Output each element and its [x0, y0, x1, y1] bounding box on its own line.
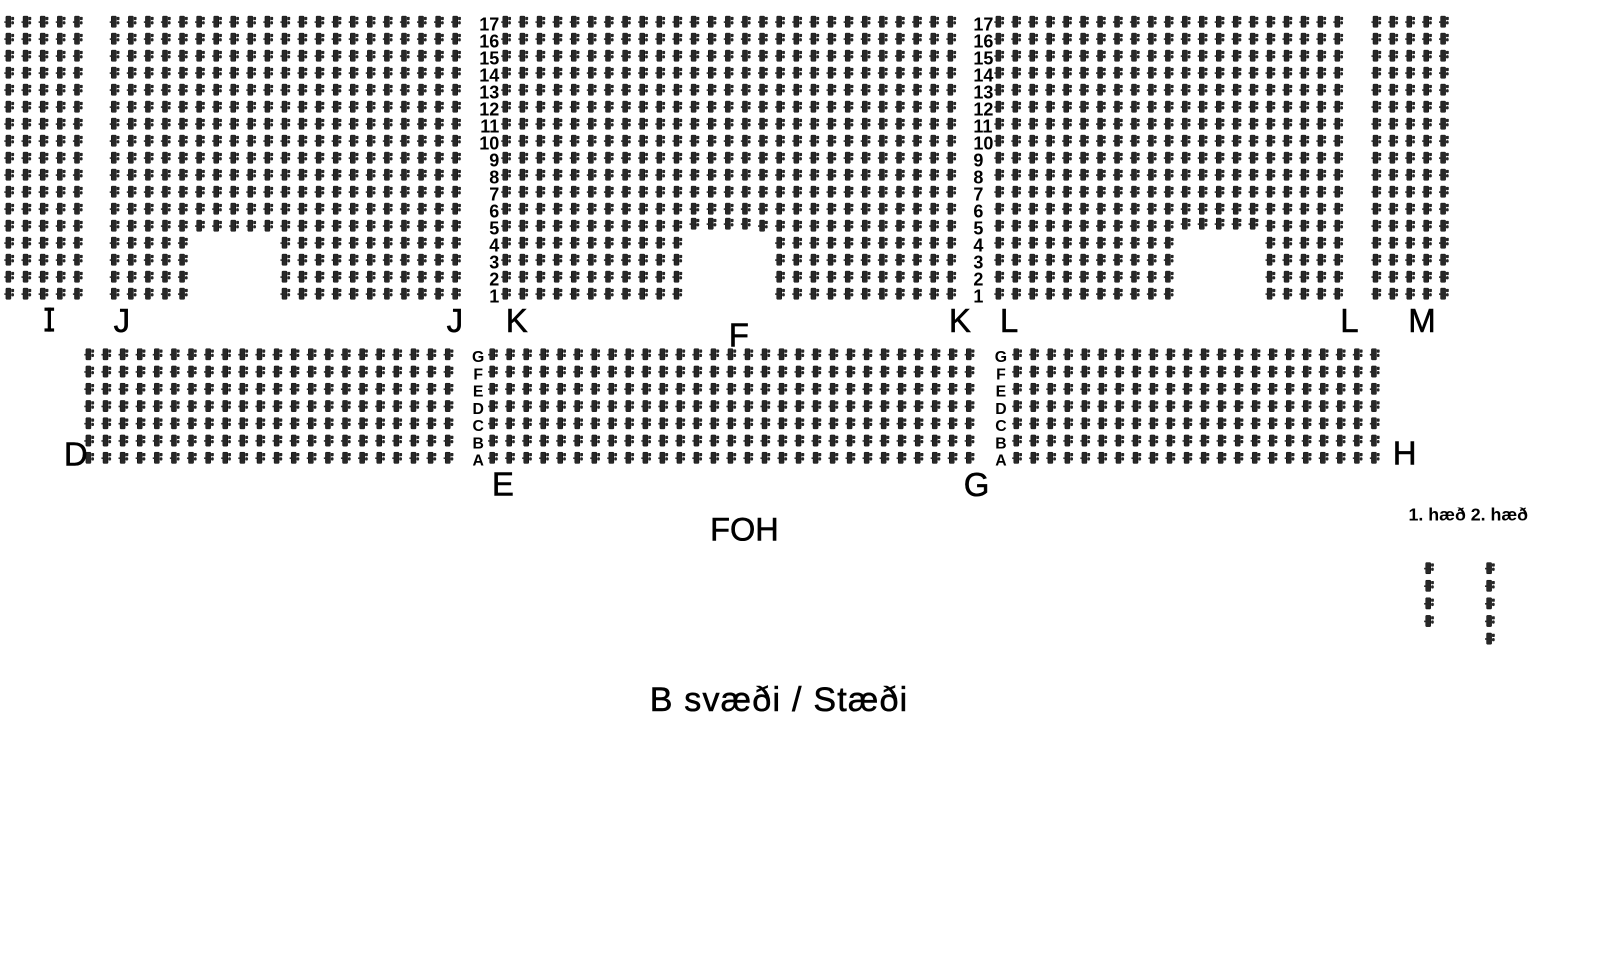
svg-text:FOH: FOH: [710, 511, 779, 547]
svg-text:A: A: [995, 453, 1006, 470]
svg-text:E: E: [492, 466, 514, 503]
svg-text:1: 1: [489, 287, 499, 307]
svg-text:1. hæð 2. hæð: 1. hæð 2. hæð: [1409, 504, 1529, 524]
svg-text:G: G: [995, 349, 1007, 366]
svg-text:J: J: [114, 302, 131, 339]
svg-text:G: G: [964, 466, 990, 503]
svg-text:L: L: [1000, 302, 1018, 339]
svg-text:G: G: [472, 349, 484, 366]
svg-text:F: F: [473, 366, 483, 383]
svg-text:C: C: [995, 418, 1006, 435]
svg-text:J: J: [447, 302, 464, 339]
svg-text:E: E: [996, 384, 1007, 401]
svg-text:F: F: [729, 317, 749, 354]
svg-text:K: K: [949, 302, 971, 339]
svg-text:K: K: [506, 302, 528, 339]
svg-text:M: M: [1408, 302, 1436, 339]
svg-text:B svæði / Stæði: B svæði / Stæði: [650, 681, 909, 719]
svg-text:F: F: [996, 366, 1006, 383]
svg-text:D: D: [472, 401, 483, 418]
svg-text:H: H: [1393, 435, 1417, 472]
svg-text:L: L: [1340, 302, 1358, 339]
svg-text:D: D: [64, 436, 88, 473]
svg-text:1: 1: [973, 287, 983, 307]
svg-text:C: C: [472, 418, 483, 435]
svg-text:B: B: [472, 435, 483, 452]
svg-text:B: B: [995, 435, 1006, 452]
svg-text:E: E: [473, 384, 484, 401]
svg-text:A: A: [472, 453, 483, 470]
svg-text:D: D: [995, 401, 1006, 418]
